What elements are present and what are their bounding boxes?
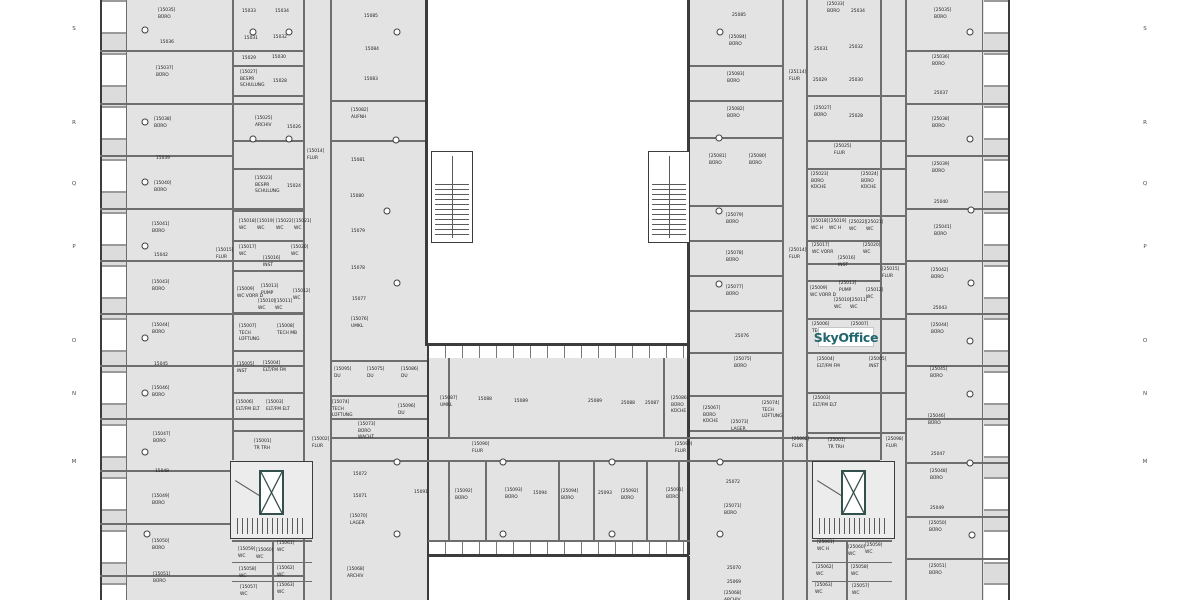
room-label: [15023]BESPR SCHULUNG [255, 176, 282, 196]
room-label: [15096]DU [398, 404, 415, 417]
room-label: 25070 [727, 566, 741, 573]
column-marker-icon [142, 179, 149, 186]
room-label: 15028 [273, 79, 287, 86]
room-label: [25020]WC [863, 243, 880, 256]
column-marker-icon [967, 460, 974, 467]
room-label: [25014]FLUR [789, 248, 806, 261]
column-marker-icon [384, 208, 391, 215]
room-label: 25028 [849, 114, 863, 121]
room-label: [25022]WC [849, 220, 866, 233]
room-label: 15039 [156, 156, 170, 163]
wall-segment [593, 460, 595, 540]
room-label: [15068]ARCHIV [347, 567, 364, 580]
room-label: [15058]WC [239, 567, 256, 580]
room-label: [15038]BÜRO [154, 117, 171, 130]
wall-segment [806, 240, 880, 242]
room-label: [25016]INST [838, 256, 855, 269]
room-label: [25019]WC H [829, 219, 846, 232]
wall-segment [806, 95, 905, 97]
wall-segment [905, 365, 1008, 367]
room-label: 15088 [478, 397, 492, 404]
room-label: [25004]ELT/FM FM [817, 357, 840, 370]
room-label: [25012]WC [866, 288, 883, 301]
skyoffice-logo: SkyOffice [818, 327, 874, 347]
wall-segment [812, 581, 892, 582]
room-label: [15075]DU [367, 367, 384, 380]
column-marker-icon [142, 27, 149, 34]
wall-segment [448, 460, 450, 540]
room-label: 15077 [352, 297, 366, 304]
room-label: [25035]BÜRO [934, 8, 951, 21]
wall-segment [690, 310, 782, 312]
room-label: [25036]BÜRO [932, 55, 949, 68]
room-label: [15082]AUFNH [351, 108, 368, 121]
room-label: [15086]DU [401, 367, 418, 380]
column-marker-icon [967, 338, 974, 345]
room-label: [25048]BÜRO [930, 469, 947, 482]
wall-segment [690, 137, 782, 139]
column-marker-icon [717, 459, 724, 466]
room-label: [15014]FLUR [307, 149, 324, 162]
room-label: [25018]WC H [811, 219, 828, 232]
window-band-top [428, 346, 687, 358]
column-marker-icon [716, 208, 723, 215]
floor-plan-canvas: [15035]BÜRO15036[15037]BÜRO[15038]BÜRO15… [0, 0, 1200, 600]
wall-segment [425, 0, 428, 345]
room-label: [15001]TR TRH [254, 439, 271, 452]
wall-segment [126, 0, 127, 600]
wall-segment [905, 260, 1008, 262]
room-label: 25049 [930, 506, 944, 513]
elevator-icon [841, 470, 866, 515]
room-label: [25011]WC [850, 298, 867, 311]
wall-segment [100, 0, 102, 600]
room-label: [15041]BÜRO [152, 222, 169, 235]
grid-row-label: R [72, 120, 76, 126]
wall-segment [428, 540, 690, 542]
wall-segment [806, 215, 905, 217]
column-marker-icon [286, 136, 293, 143]
wall-segment [330, 100, 425, 102]
column-marker-icon [142, 390, 149, 397]
wall-segment [690, 100, 782, 102]
room-label: [15087]UMKL [440, 396, 457, 409]
room-label: 25072 [726, 480, 740, 487]
room-label: [25071]BÜRO [724, 504, 741, 517]
room-label: [25082]BÜRO [727, 107, 744, 120]
wall-segment [1008, 0, 1010, 600]
wall-segment [905, 462, 1008, 464]
room-label: 15045 [154, 362, 168, 369]
room-label: [15051]BÜRO [153, 572, 170, 585]
wall-segment [690, 240, 782, 242]
room-label: [15007]TECH LÜFTUNG [239, 324, 266, 344]
room-label: 15083 [364, 77, 378, 84]
room-label: [15090]FLUR [472, 442, 489, 455]
wall-segment [687, 556, 690, 600]
wall-segment [690, 275, 782, 277]
room-label: [15027]BESPR SCHULUNG [240, 70, 267, 90]
room-label: [15059]WC [238, 547, 255, 560]
wall-segment [806, 318, 905, 320]
wall-segment [100, 418, 303, 420]
column-marker-icon [967, 391, 974, 398]
room-label: 25040 [934, 200, 948, 207]
grid-row-label: Q [1143, 181, 1147, 187]
room-label: 15089 [514, 399, 528, 406]
grid-row-label: R [1143, 120, 1147, 126]
room-label: [25073]LAGER [731, 420, 748, 433]
wall-segment [330, 395, 427, 397]
grid-row-label: P [72, 244, 75, 250]
column-marker-icon [717, 531, 724, 538]
stairwell-top-right-icon [648, 151, 690, 243]
room-label: [15060]WC [256, 548, 273, 561]
room-label: [15061]WC [277, 541, 294, 554]
column-marker-icon [250, 29, 257, 36]
wall-segment [905, 50, 1008, 52]
wall-segment [330, 0, 332, 600]
column-marker-icon [394, 29, 401, 36]
room-label: [25062]WC [816, 565, 833, 578]
wall-segment [663, 358, 665, 438]
wall-segment [646, 460, 648, 540]
stairwell-bottom-right-icon [812, 461, 895, 539]
room-label: [15062]WC [277, 566, 294, 579]
facade-east [984, 0, 1010, 600]
wall-segment [806, 392, 905, 394]
wall-segment [806, 263, 905, 265]
wall-segment [232, 581, 312, 582]
column-marker-icon [609, 459, 616, 466]
room-label: [15047]BÜRO [153, 432, 170, 445]
room-label: [25039]BÜRO [932, 162, 949, 175]
room-label: [25024]BÜRO KÜCHE [861, 172, 888, 192]
room-label: [15046]BÜRO [152, 386, 169, 399]
room-label: [15017]WC [239, 245, 256, 258]
room-label: 15091 [414, 490, 428, 497]
room-label: [25017]WC VORR [812, 243, 833, 256]
room-label: [15018]WC [239, 219, 256, 232]
column-marker-icon [142, 119, 149, 126]
facade-west [100, 0, 126, 600]
wall-segment [232, 240, 303, 242]
room-label: [25027]BÜRO [814, 106, 831, 119]
wall-segment [330, 140, 425, 142]
wall-segment [232, 210, 303, 212]
column-marker-icon [609, 531, 616, 538]
wall-segment [232, 562, 312, 563]
room-label: [25041]BÜRO [934, 225, 951, 238]
column-marker-icon [394, 280, 401, 287]
room-label: [25003]ELT/FM ELT [813, 396, 837, 409]
wall-segment [330, 360, 427, 362]
grid-row-label: Q [72, 181, 76, 187]
wall-segment [806, 168, 905, 170]
room-label: [25009]WC VORR D [810, 286, 836, 299]
column-marker-icon [144, 531, 151, 538]
courtyard-bottom [429, 557, 687, 600]
room-label: [15092]BÜRO [455, 489, 472, 502]
room-label: 15029 [242, 56, 256, 63]
room-label: [25090]FLUR [675, 442, 692, 455]
column-marker-icon [968, 280, 975, 287]
room-label: [15004]ELT/FM FM [263, 361, 286, 374]
room-label: [25078]BÜRO [726, 251, 743, 264]
column-marker-icon [967, 29, 974, 36]
grid-row-label: M [1143, 459, 1148, 465]
column-marker-icon [142, 335, 149, 342]
room-label: [25092]BÜRO [621, 489, 638, 502]
wall-segment [232, 65, 303, 67]
room-label: [25060]WC [848, 545, 865, 558]
room-label: [25075]BÜRO [734, 357, 751, 370]
room-label: [15057]WC [240, 585, 257, 598]
grid-row-label: O [72, 338, 76, 344]
room-label: [25045]BÜRO [930, 367, 947, 380]
grid-row-label: P [1143, 244, 1146, 250]
column-marker-icon [968, 207, 975, 214]
room-label: 15048 [155, 469, 169, 476]
wall-segment [690, 395, 782, 397]
wall-segment [232, 270, 303, 272]
wall-segment [982, 0, 983, 600]
room-label: 15034 [275, 9, 289, 16]
wall-segment [427, 554, 689, 557]
room-label: [15025]ARCHIV [255, 116, 272, 129]
wall-segment [232, 140, 303, 142]
room-label: [15035]BÜRO [158, 8, 175, 21]
room-label: 15072 [353, 472, 367, 479]
room-label: 25089 [588, 399, 602, 406]
wall-segment [690, 65, 782, 67]
elevator-icon [259, 470, 284, 515]
room-label: 25085 [732, 13, 746, 20]
room-label: [15050]BÜRO [152, 539, 169, 552]
room-label: [15005]INST [237, 362, 254, 375]
grid-row-label: O [1143, 338, 1147, 344]
room-label: [25025]FLUR [834, 144, 851, 157]
room-label: [25086]BÜRO KÜCHE [671, 396, 698, 416]
room-label: 25076 [735, 334, 749, 341]
column-marker-icon [716, 281, 723, 288]
room-label: [25051]BÜRO [929, 564, 946, 577]
room-label: [15013]PUMP [261, 284, 278, 297]
room-label: [25114]FLUR [789, 70, 806, 83]
column-marker-icon [717, 29, 724, 36]
wall-segment [905, 103, 1008, 105]
wall-segment [425, 343, 690, 346]
wall-segment [690, 205, 782, 207]
room-label: 15030 [272, 55, 286, 62]
room-label: [25067]BÜRO KÜCHE [703, 406, 730, 426]
room-label: [15019]WC [257, 219, 274, 232]
room-label: [25046]BÜRO [928, 414, 945, 427]
wall-segment [806, 0, 808, 600]
room-label: 15042 [154, 253, 168, 260]
room-label: 15071 [353, 494, 367, 501]
grid-row-label: S [1143, 26, 1147, 32]
room-label: [15063]WC [277, 583, 294, 596]
room-label: 15081 [351, 158, 365, 165]
room-label: 15031 [244, 36, 258, 43]
room-label: [15016]INST [263, 256, 280, 269]
wall-segment [905, 313, 1008, 315]
room-label: [15070]LAGER [350, 514, 367, 527]
wall-segment [232, 0, 234, 460]
room-label: [15002]FLUR [312, 437, 329, 450]
column-marker-icon [393, 137, 400, 144]
wall-segment [806, 432, 905, 434]
room-label: 25043 [933, 306, 947, 313]
room-label: [25068]ARCHIV [724, 591, 741, 600]
wall-segment [427, 556, 429, 600]
room-label: [25063]WC [815, 583, 832, 596]
room-label: [15043]BÜRO [152, 280, 169, 293]
room-label: [15044]BÜRO [152, 323, 169, 336]
room-label: [25002]FLUR [792, 437, 809, 450]
grid-row-label: M [72, 459, 77, 465]
room-label: [25044]BÜRO [931, 323, 948, 336]
room-label: 15026 [287, 125, 301, 132]
room-label: [15076]UMKL [351, 317, 368, 330]
room-label: [25079]BÜRO [726, 213, 743, 226]
room-label: [25033]BÜRO [827, 2, 844, 15]
room-label: 25093 [598, 491, 612, 498]
wall-segment [232, 168, 303, 170]
wall-segment [806, 352, 905, 354]
wall-segment [232, 392, 303, 394]
room-label: [15093]BÜRO [505, 488, 522, 501]
wall-segment [905, 0, 907, 600]
wall-segment [905, 418, 1008, 420]
wall-segment [905, 516, 1008, 518]
column-marker-icon [967, 136, 974, 143]
wall-segment [690, 352, 782, 354]
room-label: [15049]BÜRO [152, 494, 169, 507]
room-label: [25042]BÜRO [931, 268, 948, 281]
wall-segment [812, 562, 892, 563]
room-label: [25083]BÜRO [727, 72, 744, 85]
column-marker-icon [969, 532, 976, 539]
wall-segment [485, 460, 487, 540]
room-label: 25088 [621, 401, 635, 408]
room-label: 15024 [287, 184, 301, 191]
room-label: 15094 [533, 491, 547, 498]
room-label: [15021]WC [294, 219, 311, 232]
room-label: [15073]BÜRO WACHT [358, 422, 385, 442]
room-label: 15079 [351, 229, 365, 236]
room-label: [25084]BÜRO [729, 35, 746, 48]
wall-segment [232, 430, 303, 432]
wall-segment [232, 350, 303, 352]
room-label: [15010]WC [258, 299, 275, 312]
room-label: [15022]WC [276, 219, 293, 232]
room-label: [25038]BÜRO [932, 117, 949, 130]
room-label: [15012]WC [293, 289, 310, 302]
room-label: [25050]BÜRO [929, 521, 946, 534]
room-label: 25032 [849, 45, 863, 52]
wall-segment [330, 460, 880, 462]
room-label: 15032 [273, 35, 287, 42]
room-label: [25010]WC [834, 298, 851, 311]
room-label: [25058]WC [851, 565, 868, 578]
room-label: [25015]FLUR [882, 267, 899, 280]
room-label: [15074]TECH LÜFTUNG [332, 400, 359, 420]
column-marker-icon [716, 135, 723, 142]
room-label: [15037]BÜRO [156, 66, 173, 79]
room-label: [25023]BÜRO KÜCHE [811, 172, 838, 192]
wall-segment [232, 312, 303, 314]
room-label: [15003]ELT/FM ELT [266, 400, 290, 413]
column-marker-icon [142, 449, 149, 456]
wall-segment [100, 50, 303, 52]
grid-row-label: N [1143, 391, 1147, 397]
room-label: 25029 [813, 78, 827, 85]
wall-segment [905, 558, 1008, 560]
wall-segment [806, 140, 905, 142]
room-label: 25047 [931, 452, 945, 459]
room-label: 25030 [849, 78, 863, 85]
room-label: [25013]PUMP [839, 281, 856, 294]
room-label: [25005]INST [869, 357, 886, 370]
room-label: [25059]WC [865, 543, 882, 556]
room-label: 25031 [814, 47, 828, 54]
room-label: [25081]BÜRO [709, 154, 726, 167]
room-label: [15095]DU [334, 367, 351, 380]
room-label: 25069 [727, 580, 741, 587]
wall-segment [558, 460, 560, 540]
room-label: 15085 [364, 14, 378, 21]
room-label: [15011]WC [275, 299, 292, 312]
column-marker-icon [500, 531, 507, 538]
room-label: [25080]BÜRO [749, 154, 766, 167]
room-label: [25098]FLUR [886, 437, 903, 450]
room-label: 15084 [365, 47, 379, 54]
room-label: 15080 [350, 194, 364, 201]
room-label: [25077]BÜRO [726, 285, 743, 298]
wall-segment [905, 208, 1008, 210]
stairwell-top-left-icon [431, 151, 473, 243]
wall-segment [100, 103, 303, 105]
room-label: [15040]BÜRO [154, 181, 171, 194]
wall-segment [232, 95, 303, 97]
column-marker-icon [250, 136, 257, 143]
room-label: 25034 [851, 9, 865, 16]
room-label: [15006]ELT/FM ELT [236, 400, 260, 413]
room-label: [25057]WC [852, 584, 869, 597]
room-label: [25091]BÜRO [666, 488, 683, 501]
room-label: [25001]TR TRH [828, 438, 845, 451]
window-band-bottom [428, 542, 687, 554]
column-marker-icon [394, 531, 401, 538]
room-label: [25094]BÜRO [561, 489, 578, 502]
stairwell-bottom-left-icon [230, 461, 313, 539]
room-label: [15015]FLUR [216, 248, 233, 261]
room-label: [15020]WC [291, 245, 308, 258]
wall-segment [427, 345, 429, 555]
column-marker-icon [500, 459, 507, 466]
room-label: [15008]TECH MB [277, 324, 297, 337]
room-label: [25074]TECH LÜFTUNG [762, 401, 789, 421]
room-label: [25021]WC [866, 220, 883, 233]
wall-segment [905, 155, 1008, 157]
wall-segment [782, 0, 784, 600]
column-marker-icon [394, 459, 401, 466]
room-label: 15033 [242, 9, 256, 16]
room-label: 25037 [934, 91, 948, 98]
room-label: [25061]WC H [817, 540, 834, 553]
